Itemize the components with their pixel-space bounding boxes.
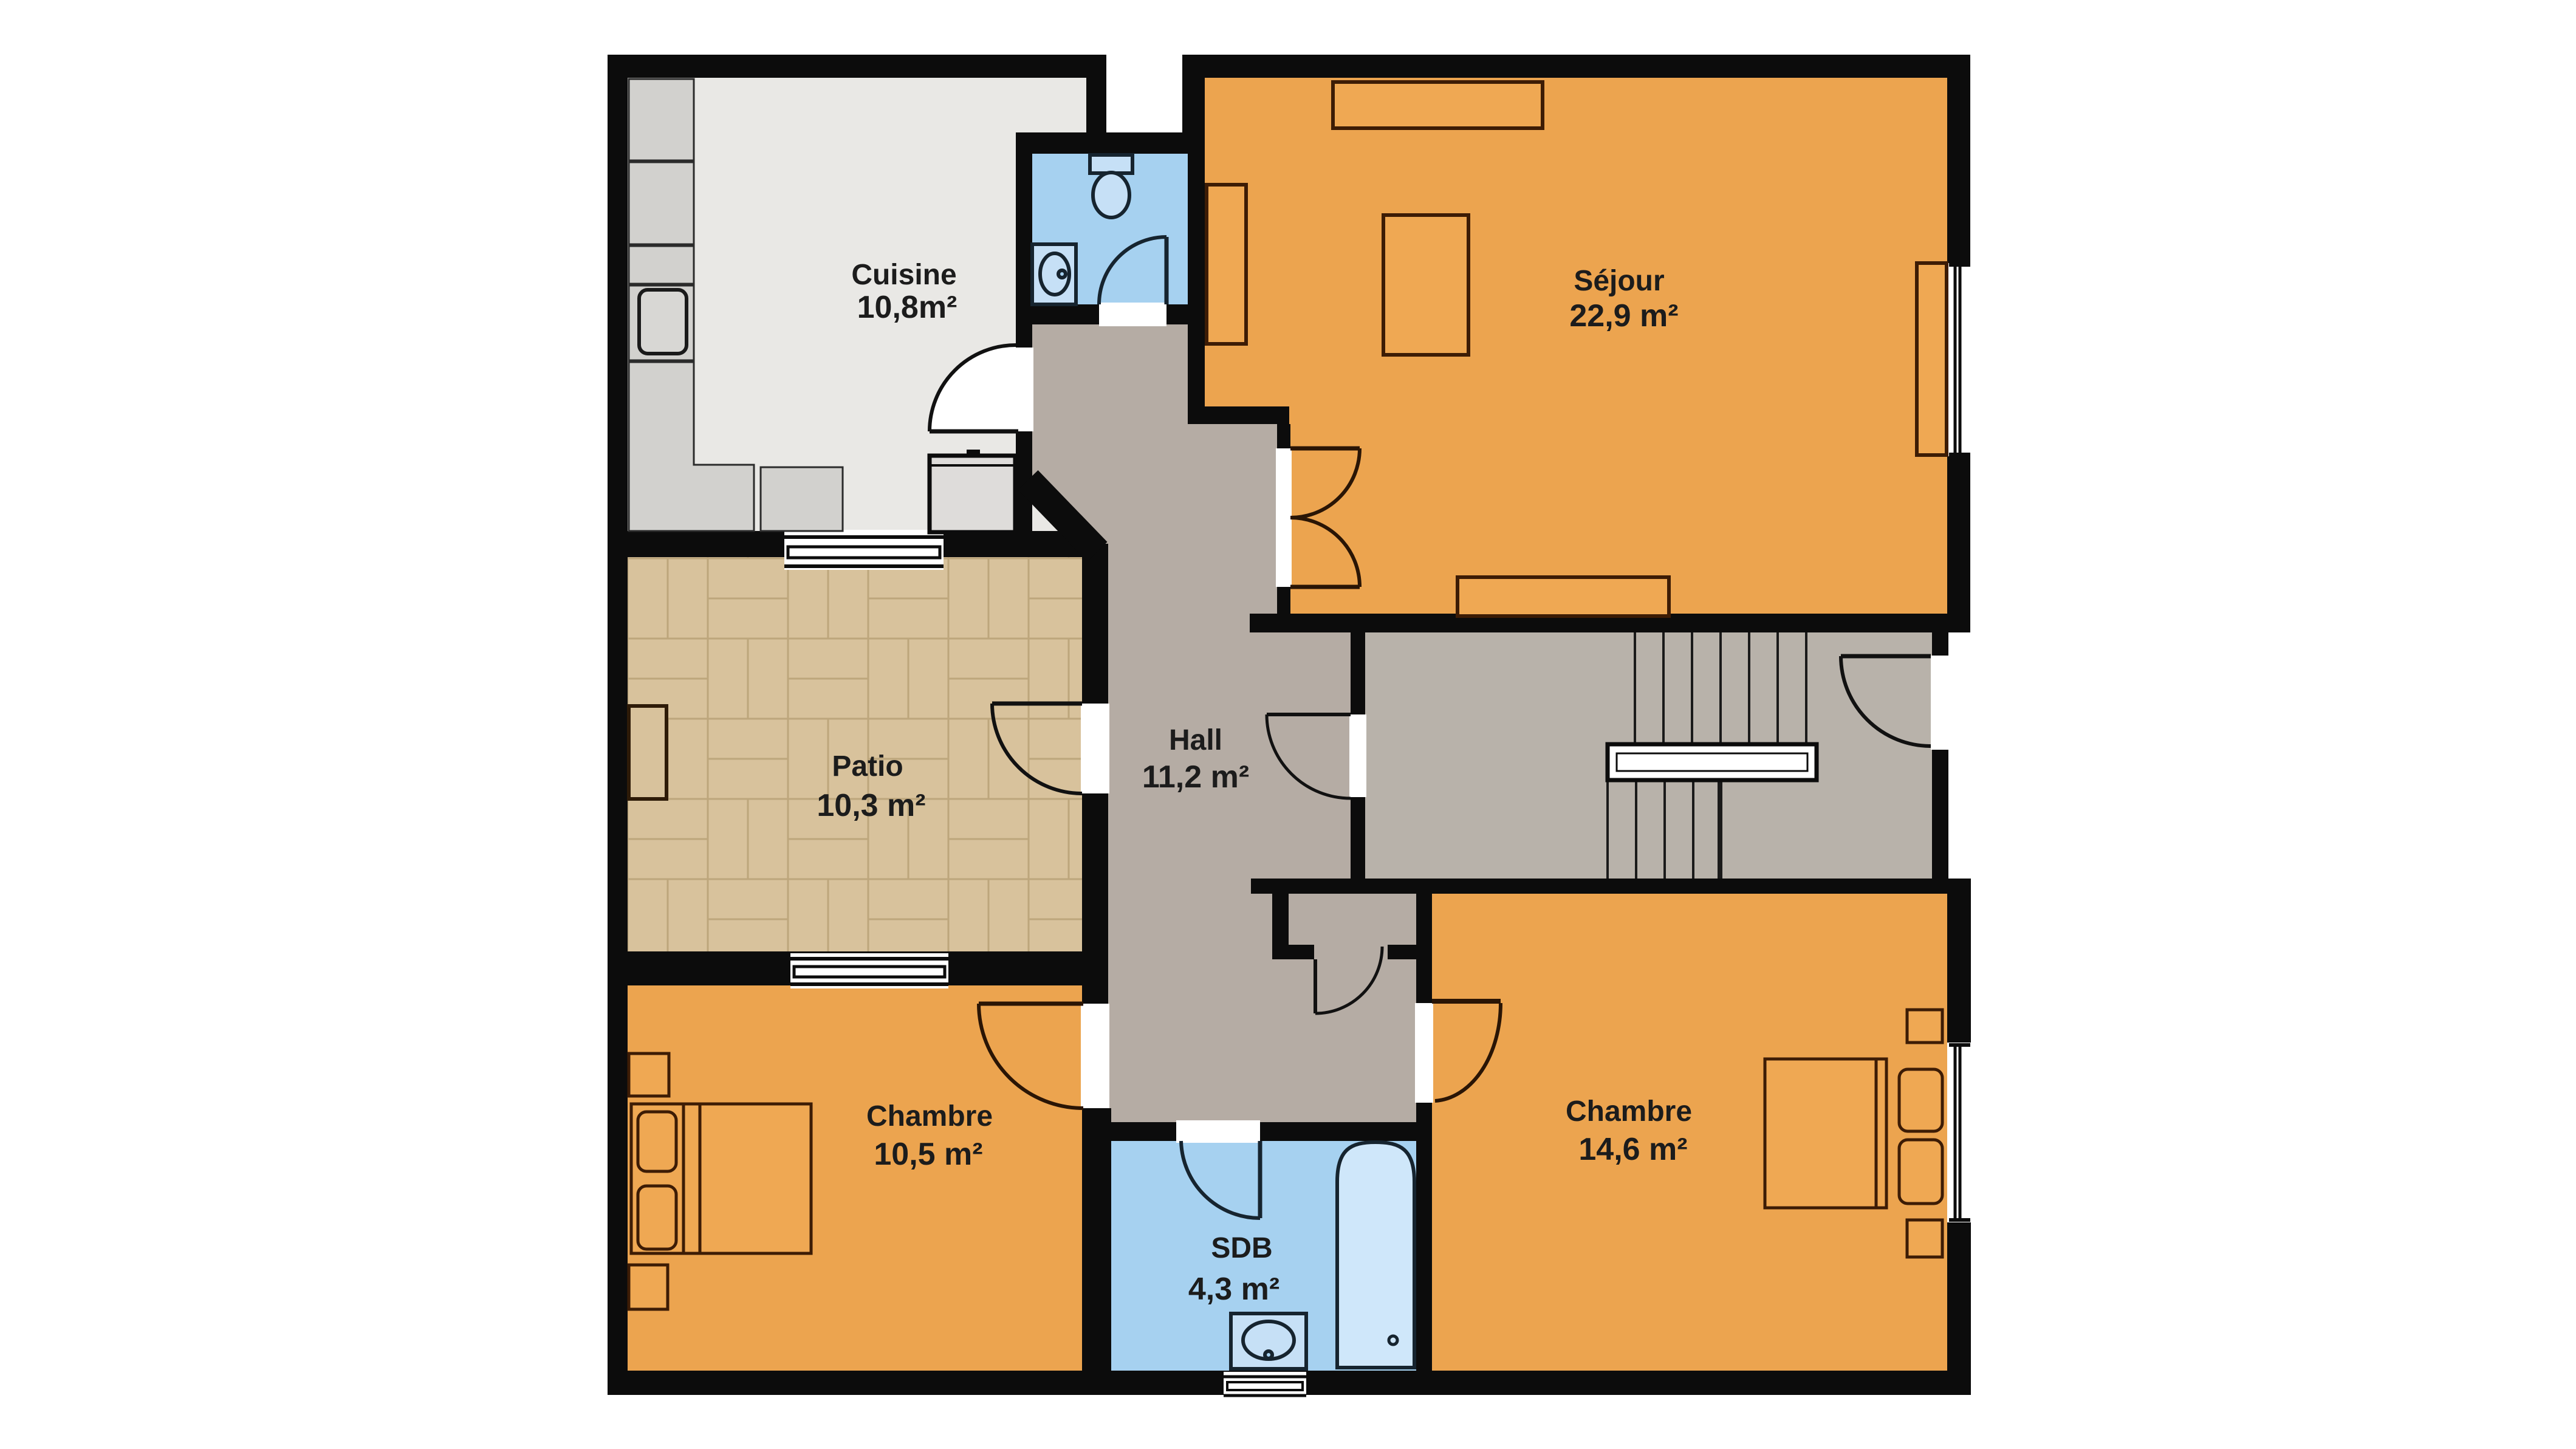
svg-text:Chambre: Chambre	[866, 1100, 993, 1132]
svg-text:SDB: SDB	[1211, 1232, 1272, 1264]
svg-text:11,2 m²: 11,2 m²	[1142, 759, 1249, 795]
svg-text:Hall: Hall	[1169, 724, 1222, 756]
svg-text:Séjour: Séjour	[1574, 265, 1664, 297]
svg-text:Chambre: Chambre	[1566, 1095, 1692, 1128]
svg-text:10,5 m²: 10,5 m²	[874, 1137, 982, 1172]
svg-text:4,3 m²: 4,3 m²	[1188, 1272, 1279, 1307]
svg-text:14,6 m²: 14,6 m²	[1578, 1132, 1687, 1167]
svg-text:Patio: Patio	[832, 750, 903, 783]
svg-text:Cuisine: Cuisine	[851, 259, 956, 291]
svg-text:10,8m²: 10,8m²	[857, 290, 957, 325]
svg-text:10,3 m²: 10,3 m²	[817, 788, 925, 823]
svg-text:22,9 m²: 22,9 m²	[1569, 298, 1678, 334]
